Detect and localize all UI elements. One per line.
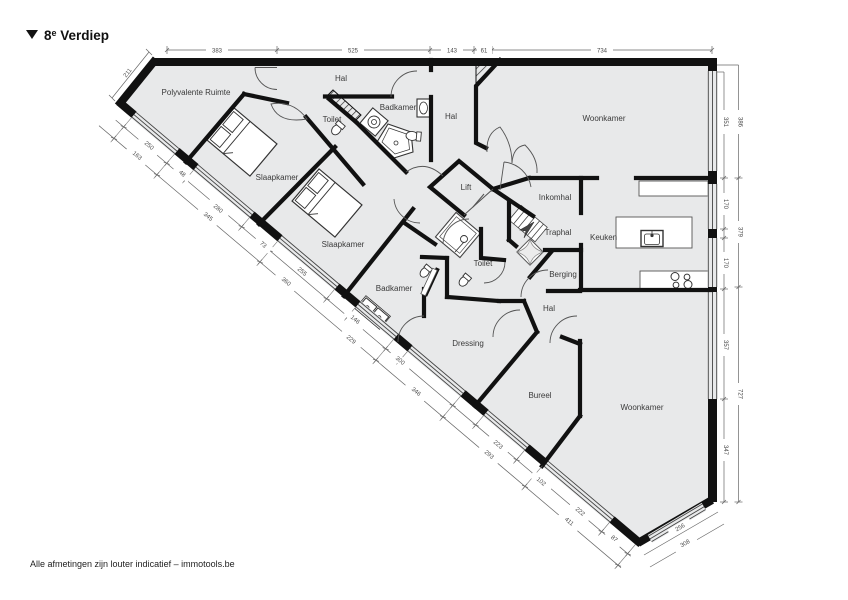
svg-text:Hal: Hal <box>445 112 457 121</box>
svg-text:Toilet: Toilet <box>323 115 342 124</box>
svg-text:Woonkamer: Woonkamer <box>583 114 626 123</box>
svg-text:Hal: Hal <box>335 74 347 83</box>
svg-text:Slaapkamer: Slaapkamer <box>256 173 299 182</box>
svg-text:351: 351 <box>722 117 728 128</box>
svg-text:Polyvalente Ruimte: Polyvalente Ruimte <box>162 88 231 97</box>
svg-text:Berging: Berging <box>549 270 577 279</box>
svg-text:734: 734 <box>597 49 608 55</box>
svg-text:347: 347 <box>722 445 728 456</box>
svg-text:Alle afmetingen zijn louter in: Alle afmetingen zijn louter indicatief –… <box>30 559 235 569</box>
svg-text:Keuken: Keuken <box>590 233 617 242</box>
svg-text:Traphal: Traphal <box>545 228 572 237</box>
svg-text:61: 61 <box>481 49 488 55</box>
svg-text:Inkomhal: Inkomhal <box>539 193 572 202</box>
svg-text:143: 143 <box>447 49 458 55</box>
svg-text:379: 379 <box>737 227 743 238</box>
svg-text:357: 357 <box>722 340 728 351</box>
svg-text:Bureel: Bureel <box>528 391 551 400</box>
svg-text:170: 170 <box>722 258 728 269</box>
svg-text:Woonkamer: Woonkamer <box>621 403 664 412</box>
svg-text:Badkamer: Badkamer <box>380 103 417 112</box>
svg-text:Badkamer: Badkamer <box>376 284 413 293</box>
svg-text:383: 383 <box>212 49 223 55</box>
svg-text:727: 727 <box>737 389 743 400</box>
svg-text:Dressing: Dressing <box>452 339 484 348</box>
svg-text:525: 525 <box>348 49 359 55</box>
svg-text:Hal: Hal <box>543 304 555 313</box>
svg-text:Lift: Lift <box>461 183 472 192</box>
svg-text:Toilet: Toilet <box>474 259 493 268</box>
svg-text:8e Verdiep: 8e Verdiep <box>44 28 109 43</box>
svg-text:386: 386 <box>737 117 743 128</box>
svg-text:170: 170 <box>722 199 728 210</box>
svg-text:Slaapkamer: Slaapkamer <box>322 240 365 249</box>
